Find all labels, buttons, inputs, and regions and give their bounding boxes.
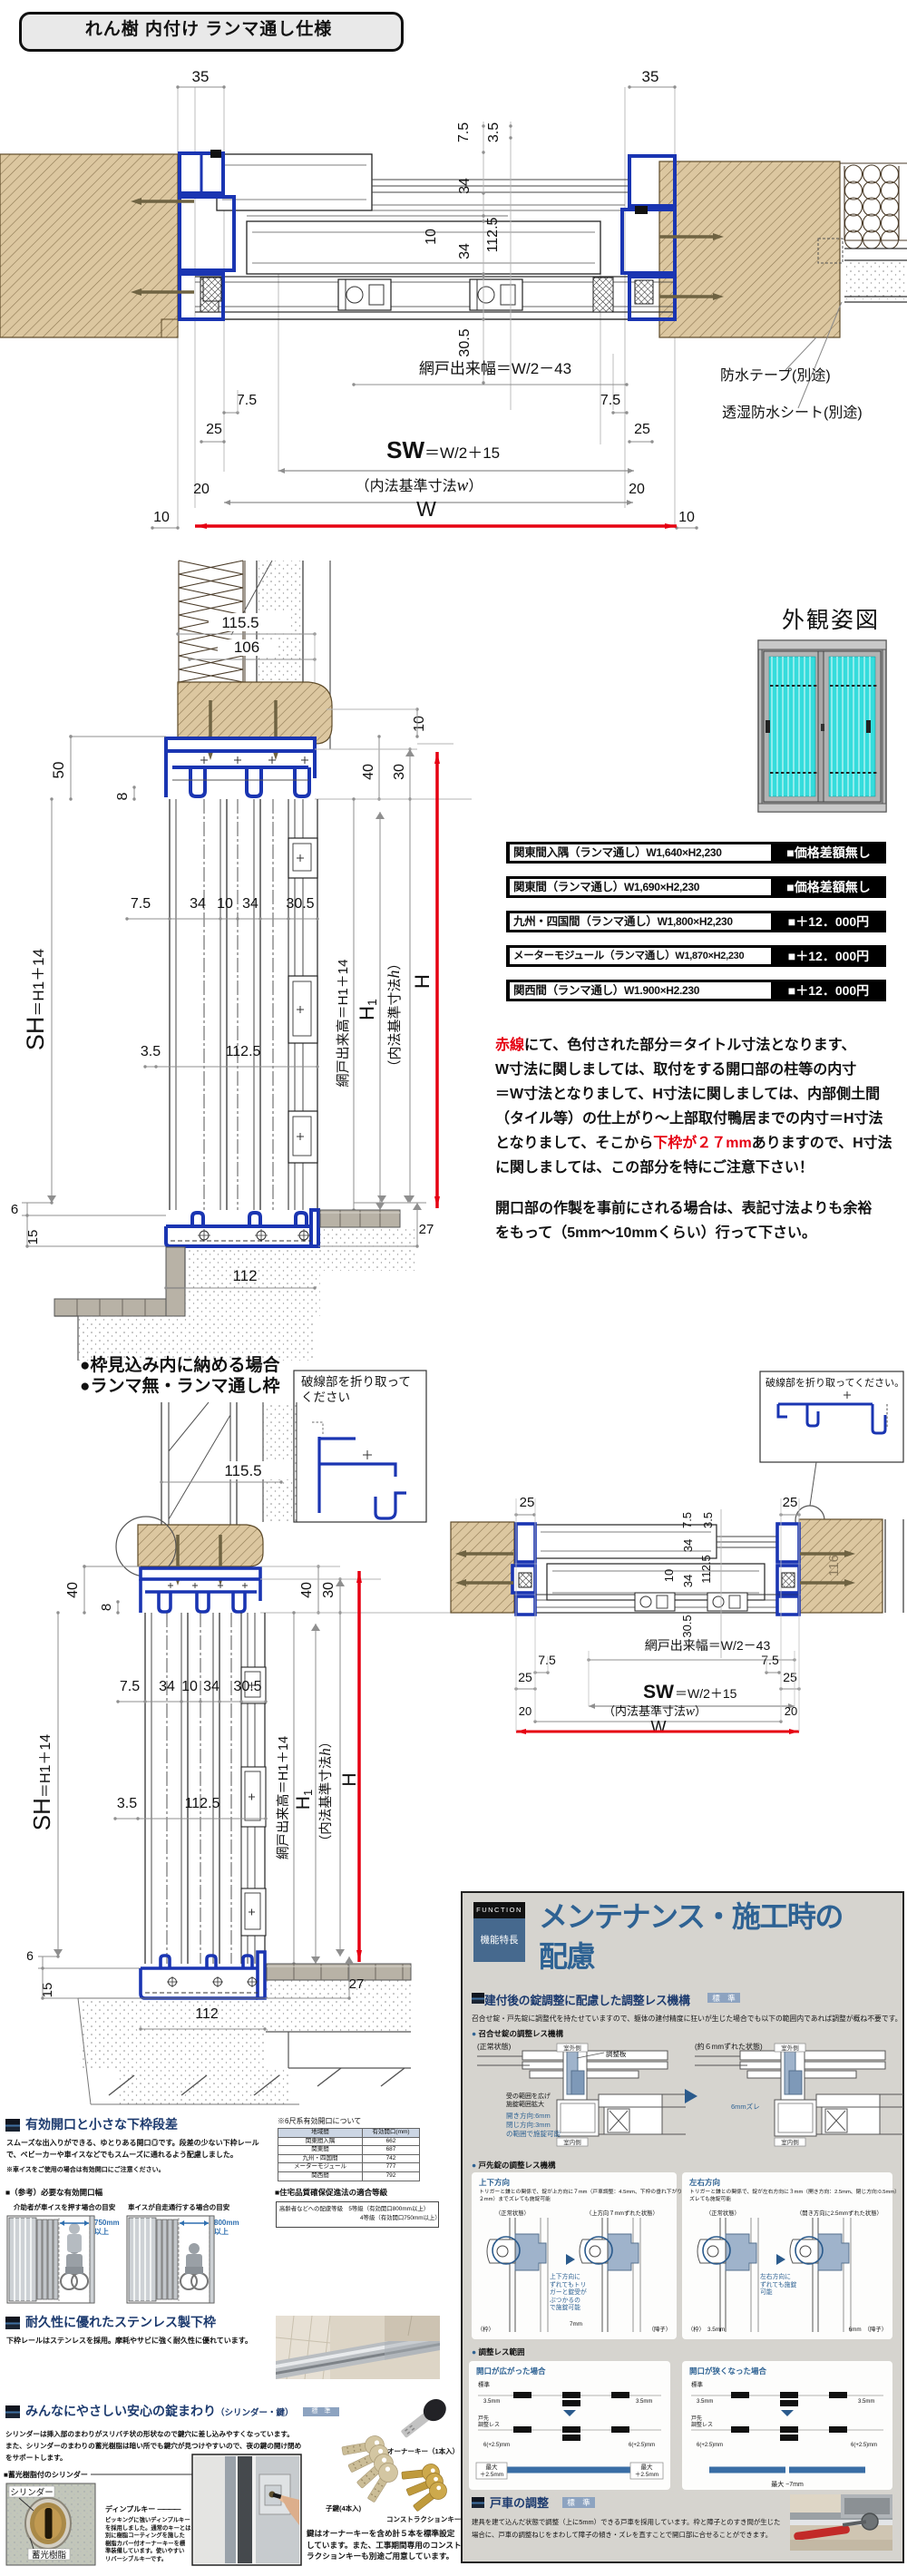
svg-text:15: 15 (25, 1230, 41, 1245)
svg-text:25: 25 (206, 422, 222, 437)
svg-text:3.5: 3.5 (701, 1512, 715, 1528)
svg-text:20: 20 (519, 1704, 532, 1718)
svg-text:標準: 標準 (478, 2380, 491, 2388)
svg-text:6: 6 (11, 1202, 18, 1217)
svg-text:10: 10 (678, 510, 695, 525)
svg-text:7.5: 7.5 (120, 1679, 140, 1694)
svg-text:30.5: 30.5 (286, 896, 314, 912)
svg-text:112: 112 (232, 1267, 257, 1284)
svg-text:7.5: 7.5 (680, 1512, 694, 1528)
svg-text:3.5mm: 3.5mm (636, 2399, 652, 2405)
svg-text:50: 50 (50, 762, 67, 779)
svg-text:破線部を折り取って: 破線部を折り取って (301, 1375, 411, 1389)
svg-text:＝W/2＋15: ＝W/2＋15 (675, 1686, 737, 1701)
svg-text:7.5: 7.5 (131, 896, 151, 912)
svg-text:(正常状態): (正常状態) (477, 2042, 512, 2051)
svg-text:34: 34 (681, 1575, 695, 1587)
svg-text:開き方向:6mm: 開き方向:6mm (506, 2111, 551, 2120)
svg-text:34: 34 (190, 896, 206, 912)
svg-text:25: 25 (783, 1670, 797, 1684)
svg-text:7.5: 7.5 (456, 122, 472, 142)
svg-text:戸先: 戸先 (691, 2415, 702, 2422)
svg-text:H: H (339, 1772, 360, 1786)
svg-text:3.5mm: 3.5mm (483, 2399, 500, 2405)
svg-text:W: W (651, 1718, 667, 1736)
svg-text:6(+2.5)mm: 6(+2.5)mm (629, 2443, 655, 2448)
svg-text:H1: H1 (293, 1790, 315, 1810)
svg-text:25: 25 (520, 1495, 535, 1510)
svg-text:（内法基準寸法w）: （内法基準寸法w） (356, 476, 483, 495)
svg-text:6(+2.5)mm: 6(+2.5)mm (483, 2443, 510, 2448)
svg-text:112.5: 112.5 (185, 1796, 220, 1811)
svg-text:防水テープ(別途): 防水テープ(別途) (720, 367, 831, 384)
svg-text:6(+2.5)mm: 6(+2.5)mm (697, 2443, 723, 2448)
svg-text:H: H (411, 974, 434, 989)
svg-text:34: 34 (203, 1679, 219, 1694)
svg-text:25: 25 (518, 1670, 532, 1684)
svg-text:6: 6 (26, 1948, 34, 1963)
svg-text:30.5: 30.5 (233, 1679, 261, 1694)
svg-text:3.5: 3.5 (486, 122, 502, 142)
svg-text:115.5: 115.5 (224, 1462, 261, 1479)
svg-text:40: 40 (65, 1582, 81, 1598)
svg-text:7.5: 7.5 (761, 1653, 779, 1667)
svg-text:網戸出来幅＝W/2－43: 網戸出来幅＝W/2－43 (419, 360, 571, 377)
svg-text:シリンダー: シリンダー (10, 2487, 54, 2498)
svg-text:施錠範囲拡大: 施錠範囲拡大 (506, 2100, 544, 2108)
svg-text:3.5mm: 3.5mm (697, 2399, 713, 2405)
svg-text:34: 34 (159, 1679, 175, 1694)
svg-text:＝W/2＋15: ＝W/2＋15 (424, 444, 500, 462)
svg-text:3.5: 3.5 (141, 1044, 161, 1059)
svg-text:10: 10 (181, 1679, 198, 1694)
svg-text:H1: H1 (356, 999, 379, 1020)
svg-text:網戸出来幅＝W/2－43: 網戸出来幅＝W/2－43 (645, 1638, 771, 1653)
svg-text:30: 30 (321, 1582, 336, 1598)
svg-text:室外側: 室外側 (563, 2044, 581, 2052)
svg-text:調整板: 調整板 (606, 2049, 627, 2058)
svg-text:10: 10 (424, 229, 439, 245)
svg-text:SW: SW (386, 436, 424, 463)
svg-text:SH＝H1＋14: SH＝H1＋14 (22, 949, 49, 1050)
svg-text:116: 116 (826, 1555, 842, 1576)
svg-text:7.5: 7.5 (600, 393, 620, 408)
svg-text:蓄光樹脂: 蓄光樹脂 (32, 2550, 67, 2561)
svg-text:20: 20 (193, 482, 210, 497)
svg-text:の範囲で施錠可能: の範囲で施錠可能 (506, 2129, 561, 2138)
svg-text:3.5: 3.5 (117, 1796, 137, 1811)
svg-text:6mmズレ: 6mmズレ (731, 2102, 760, 2111)
svg-text:25: 25 (783, 1495, 798, 1510)
svg-text:SW: SW (643, 1682, 674, 1703)
svg-text:戸先: 戸先 (478, 2415, 489, 2422)
svg-text:112: 112 (195, 2006, 219, 2022)
svg-text:網戸出来高＝H1＋14: 網戸出来高＝H1＋14 (336, 960, 351, 1088)
svg-text:透湿防水シート(別途): 透湿防水シート(別途) (722, 405, 863, 421)
svg-text:7.5: 7.5 (538, 1653, 556, 1667)
svg-text:30.5: 30.5 (457, 328, 473, 356)
svg-text:網戸出来高＝H1＋14: 網戸出来高＝H1＋14 (276, 1736, 291, 1859)
svg-text:10: 10 (412, 716, 427, 732)
svg-text:27: 27 (419, 1222, 434, 1237)
svg-text:室内側: 室内側 (781, 2138, 799, 2146)
svg-text:35: 35 (642, 68, 659, 85)
svg-text:112.5: 112.5 (699, 1555, 713, 1584)
svg-text:7.5: 7.5 (237, 393, 257, 408)
svg-text:34: 34 (242, 896, 258, 912)
svg-text:112.5: 112.5 (226, 1044, 261, 1059)
svg-text:30.5: 30.5 (680, 1615, 694, 1637)
svg-text:＋2.5mm: ＋2.5mm (635, 2471, 658, 2478)
svg-text:34: 34 (681, 1539, 695, 1552)
svg-text:3.5mm: 3.5mm (858, 2399, 874, 2405)
svg-text:106: 106 (234, 639, 259, 656)
svg-text:(約６mmずれた状態): (約６mmずれた状態) (695, 2042, 763, 2051)
svg-text:受の範囲を広げ: 受の範囲を広げ (506, 2092, 551, 2100)
svg-text:調整レス: 調整レス (691, 2421, 713, 2428)
svg-text:室外側: 室外側 (781, 2044, 799, 2052)
svg-text:8: 8 (115, 792, 131, 800)
svg-text:10: 10 (217, 896, 233, 912)
svg-text:最大: 最大 (641, 2463, 654, 2471)
svg-text:閉じ方向:3mm: 閉じ方向:3mm (506, 2120, 551, 2129)
svg-text:（内法基準寸法h）: （内法基準寸法h） (317, 1735, 334, 1849)
svg-text:最大: 最大 (486, 2463, 499, 2471)
svg-text:20: 20 (785, 1704, 797, 1718)
svg-text:破線部を折り取ってください。: 破線部を折り取ってください。 (766, 1376, 904, 1389)
svg-text:40: 40 (361, 764, 376, 780)
svg-text:25: 25 (634, 422, 650, 437)
svg-text:最大 −7mm: 最大 −7mm (771, 2480, 804, 2488)
svg-text:112.5: 112.5 (485, 217, 501, 252)
svg-text:20: 20 (629, 482, 645, 497)
svg-text:10: 10 (662, 1569, 676, 1582)
svg-text:室内側: 室内側 (563, 2138, 581, 2146)
svg-text:6(+2.5)mm: 6(+2.5)mm (851, 2443, 877, 2448)
svg-text:ください: ください (301, 1390, 350, 1404)
svg-text:（内法基準寸法h）: （内法基準寸法h） (385, 956, 403, 1073)
svg-text:40: 40 (299, 1582, 315, 1598)
svg-text:115.5: 115.5 (221, 614, 258, 631)
svg-text:35: 35 (192, 68, 210, 85)
svg-text:30: 30 (392, 764, 407, 780)
svg-text:＋2.5mm: ＋2.5mm (480, 2471, 503, 2478)
svg-text:（内法基準寸法w）: （内法基準寸法w） (603, 1704, 707, 1719)
svg-text:8: 8 (99, 1604, 114, 1611)
svg-text:標準: 標準 (691, 2380, 704, 2388)
svg-text:SH＝H1＋14: SH＝H1＋14 (28, 1734, 55, 1830)
svg-text:34: 34 (457, 243, 473, 259)
svg-text:34: 34 (457, 178, 473, 194)
svg-text:調整レス: 調整レス (478, 2421, 500, 2428)
